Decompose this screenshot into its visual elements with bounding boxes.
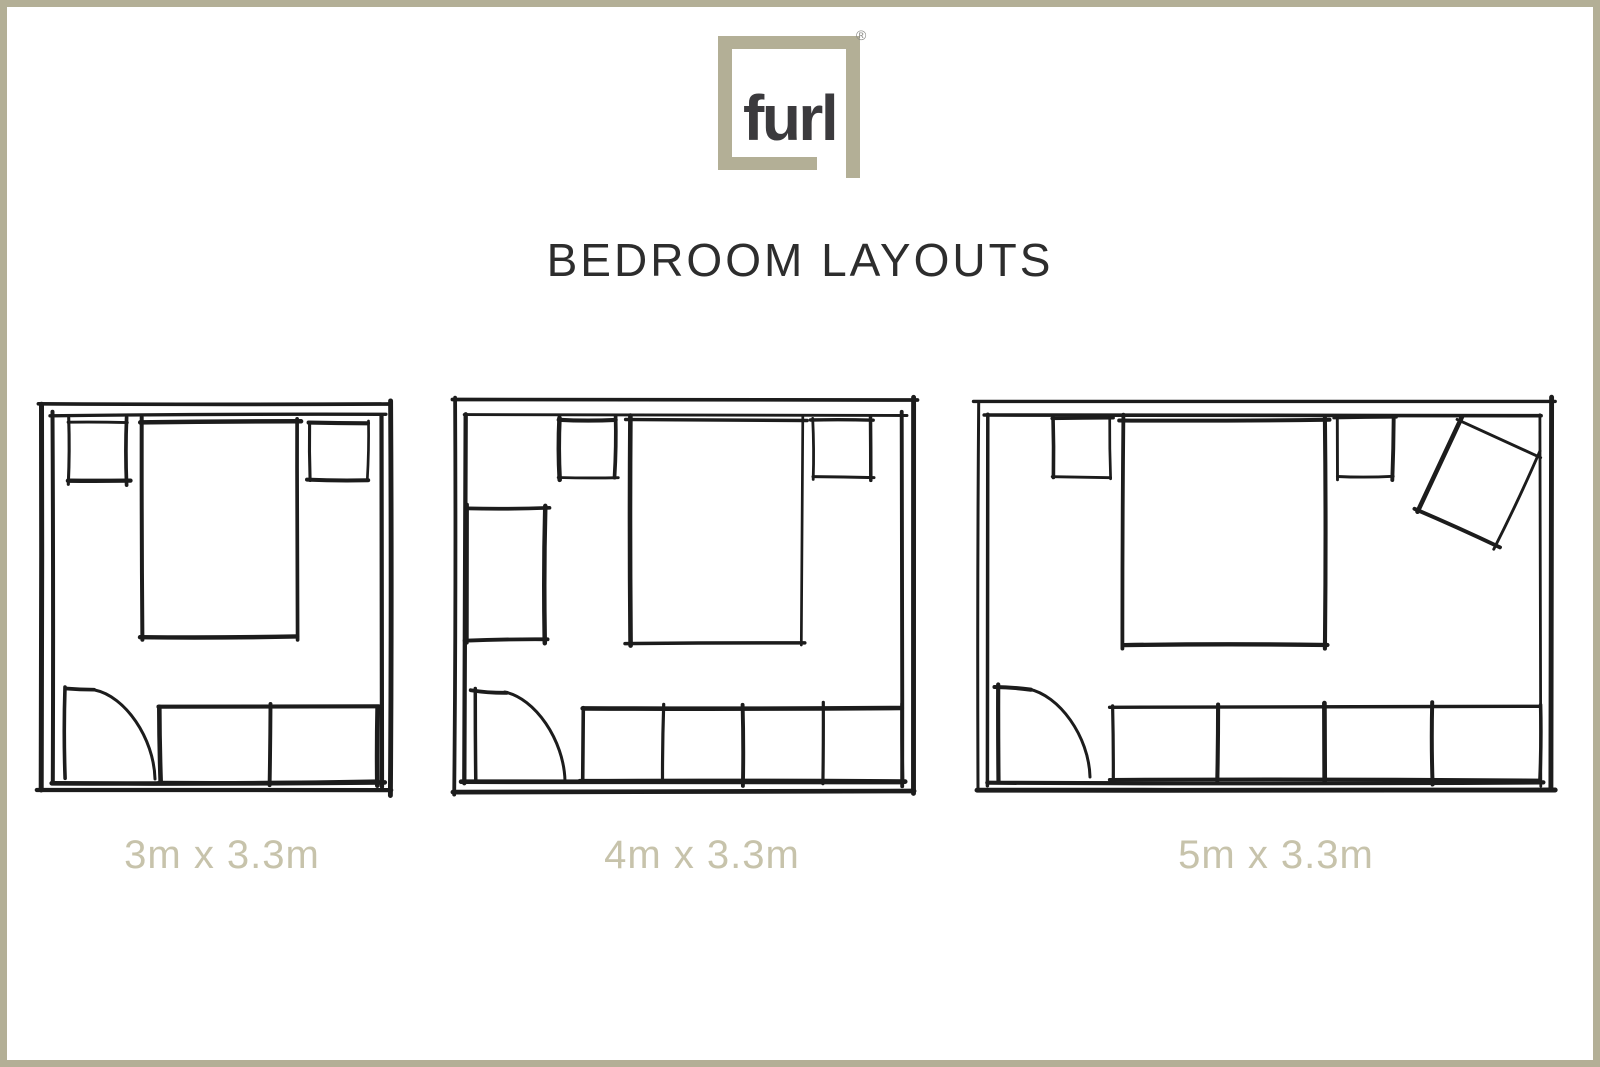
logo-frame-left: [718, 36, 732, 170]
bed: [1119, 415, 1329, 649]
floor-plan-4m-x-3.3m: [453, 398, 915, 793]
floor-plan-3m-x-3.3m: [40, 403, 392, 792]
door: [471, 689, 565, 782]
door-swing-arc: [1028, 689, 1090, 777]
plan-dimensions-label: 3m x 3.3m: [124, 833, 320, 878]
door-swing-arc: [95, 690, 155, 779]
desk: [465, 505, 550, 644]
room-walls: [37, 401, 391, 796]
door: [64, 687, 155, 779]
nightstand-right: [810, 417, 874, 481]
door-swing-arc: [505, 692, 565, 781]
room-walls: [974, 397, 1556, 790]
nightstand-left: [1052, 416, 1113, 479]
nightstand-right: [1334, 417, 1397, 480]
bed: [625, 416, 807, 646]
plan-dimensions-label: 5m x 3.3m: [1178, 833, 1374, 878]
armchair: [1413, 414, 1543, 552]
plan-dimensions-label: 4m x 3.3m: [604, 833, 800, 878]
wardrobe: [1110, 702, 1541, 784]
room-walls: [452, 397, 917, 794]
nightstand-left: [68, 418, 131, 486]
wardrobe: [159, 704, 379, 786]
logo-frame-top: [718, 36, 860, 49]
wardrobe: [580, 702, 905, 786]
nightstand-left: [558, 416, 618, 480]
logo-frame-right: [846, 36, 860, 178]
door: [995, 685, 1091, 782]
furl-logo: furl: [718, 36, 860, 178]
floor-plan-5m-x-3.3m: [977, 400, 1553, 791]
bedroom-layouts-infographic: furl ® BEDROOM LAYOUTS 3m x 3.3m 4m x 3.…: [0, 0, 1600, 1067]
logo-frame-bottom: [718, 157, 817, 170]
logo-wordmark: furl: [743, 86, 836, 150]
page-title: BEDROOM LAYOUTS: [0, 233, 1600, 287]
registered-trademark-icon: ®: [856, 27, 866, 43]
bed: [140, 417, 301, 640]
nightstand-right: [307, 421, 369, 481]
